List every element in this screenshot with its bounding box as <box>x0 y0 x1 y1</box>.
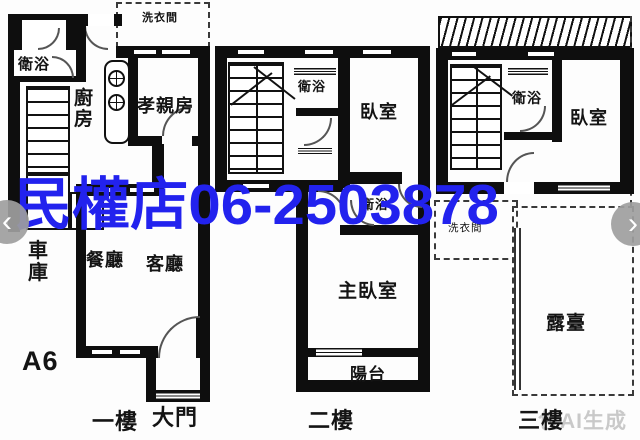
floorplan-image: 洗衣間 衛浴 <box>0 0 640 440</box>
window <box>452 50 476 58</box>
room-label-dining: 餐廳 <box>86 246 124 272</box>
stairs <box>26 86 70 174</box>
stairs <box>450 64 502 170</box>
wall <box>296 108 340 116</box>
window <box>528 50 554 58</box>
door-arc <box>520 106 546 132</box>
window <box>305 48 333 56</box>
entry-door-sill <box>156 392 200 400</box>
floor-label-1f: 一樓 <box>92 404 138 436</box>
room-label-bedroom-2f: 臥室 <box>360 98 398 124</box>
room-label-balcony: 陽台 <box>350 360 386 385</box>
room-label-parents-room: 孝親房 <box>137 92 194 118</box>
roof-hatch-area <box>438 16 632 48</box>
wall <box>552 58 562 142</box>
wall <box>192 136 210 146</box>
window <box>294 68 336 75</box>
floor-label-3f: 三樓 <box>518 403 564 435</box>
door-sill <box>298 148 332 154</box>
room-label-bath-3f: 衛浴 <box>512 88 542 108</box>
terrace-rail-line <box>514 228 521 390</box>
store-phone-watermark: 民權店06-2503878 <box>14 174 640 237</box>
door-arc <box>158 316 200 358</box>
door-opening <box>88 14 114 26</box>
wall <box>504 132 560 140</box>
window <box>134 48 156 56</box>
room-label-laundry-1f: 洗衣間 <box>142 9 178 25</box>
room-label-main-door: 大門 <box>152 400 198 432</box>
window <box>92 348 112 356</box>
chevron-left-icon: ‹ <box>2 207 12 237</box>
wall <box>620 48 634 194</box>
room-label-kitchen: 廚房 <box>74 88 96 131</box>
window <box>162 48 190 56</box>
chevron-right-icon: › <box>628 209 638 239</box>
stove-burner-icon <box>108 94 125 111</box>
wall <box>338 58 350 188</box>
room-label-terrace: 露臺 <box>546 308 586 335</box>
door-arc <box>84 26 108 50</box>
room-label-bedroom-3f: 臥室 <box>570 104 608 130</box>
wall <box>215 46 227 186</box>
stairs <box>228 62 284 174</box>
floor-label-2f: 二樓 <box>308 403 354 435</box>
door-arc <box>304 118 332 146</box>
window <box>316 348 362 357</box>
window <box>363 48 391 56</box>
unit-label: A6 <box>22 346 59 377</box>
window <box>508 68 548 75</box>
window <box>238 48 264 56</box>
room-label-master-bedroom: 主臥室 <box>338 276 398 303</box>
wall <box>200 352 210 402</box>
room-label-living: 客廳 <box>146 250 184 276</box>
stove-burner-icon <box>108 70 125 87</box>
window <box>120 348 140 356</box>
room-label-garage: 車庫 <box>28 240 50 285</box>
room-label-bath-1f: 衛浴 <box>18 53 50 74</box>
door-leaf <box>196 318 198 358</box>
room-label-bath-2f-upper: 衛浴 <box>298 76 326 95</box>
